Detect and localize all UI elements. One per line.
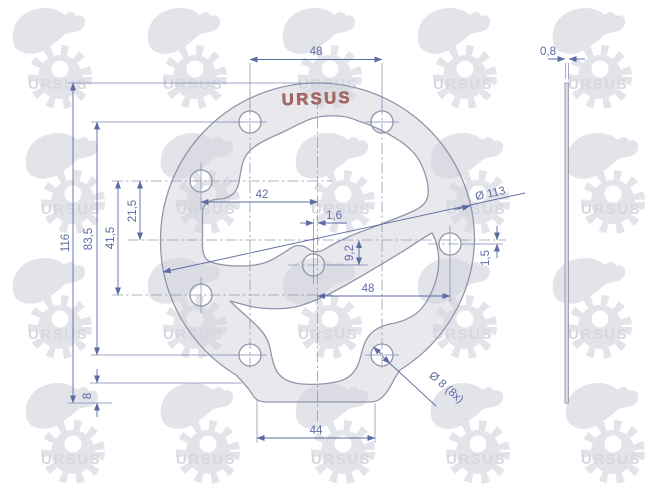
technical-drawing-canvas: URSUS URSUS URSUS bbox=[0, 0, 667, 500]
dim-bottom-step-height: 8 bbox=[82, 393, 94, 399]
gasket-drawing-svg: URSUS URSUS URSUS bbox=[0, 0, 667, 500]
dim-right-hole-offset: 1,5 bbox=[480, 250, 492, 266]
dim-overall-height: 116 bbox=[60, 234, 72, 252]
gasket-logo: URSUS bbox=[282, 89, 353, 109]
dim-bottom-flat-width: 44 bbox=[310, 425, 323, 437]
dim-center-offset-x: 1,6 bbox=[326, 210, 342, 222]
dim-thickness: 0,8 bbox=[540, 46, 556, 58]
gasket-side-view bbox=[565, 83, 568, 403]
dim-left-hole-to-center: 21,5 bbox=[127, 200, 139, 222]
dim-center-offset-y: 9,2 bbox=[344, 245, 356, 261]
dim-top-hole-spacing: 48 bbox=[310, 46, 323, 58]
dim-left-hole-to-axis: 42 bbox=[256, 189, 269, 201]
dim-hole-row-spacing: 83,5 bbox=[83, 228, 95, 250]
dim-left-hole-spacing: 41,5 bbox=[105, 227, 117, 249]
dim-axis-to-right-hole: 48 bbox=[362, 283, 375, 295]
